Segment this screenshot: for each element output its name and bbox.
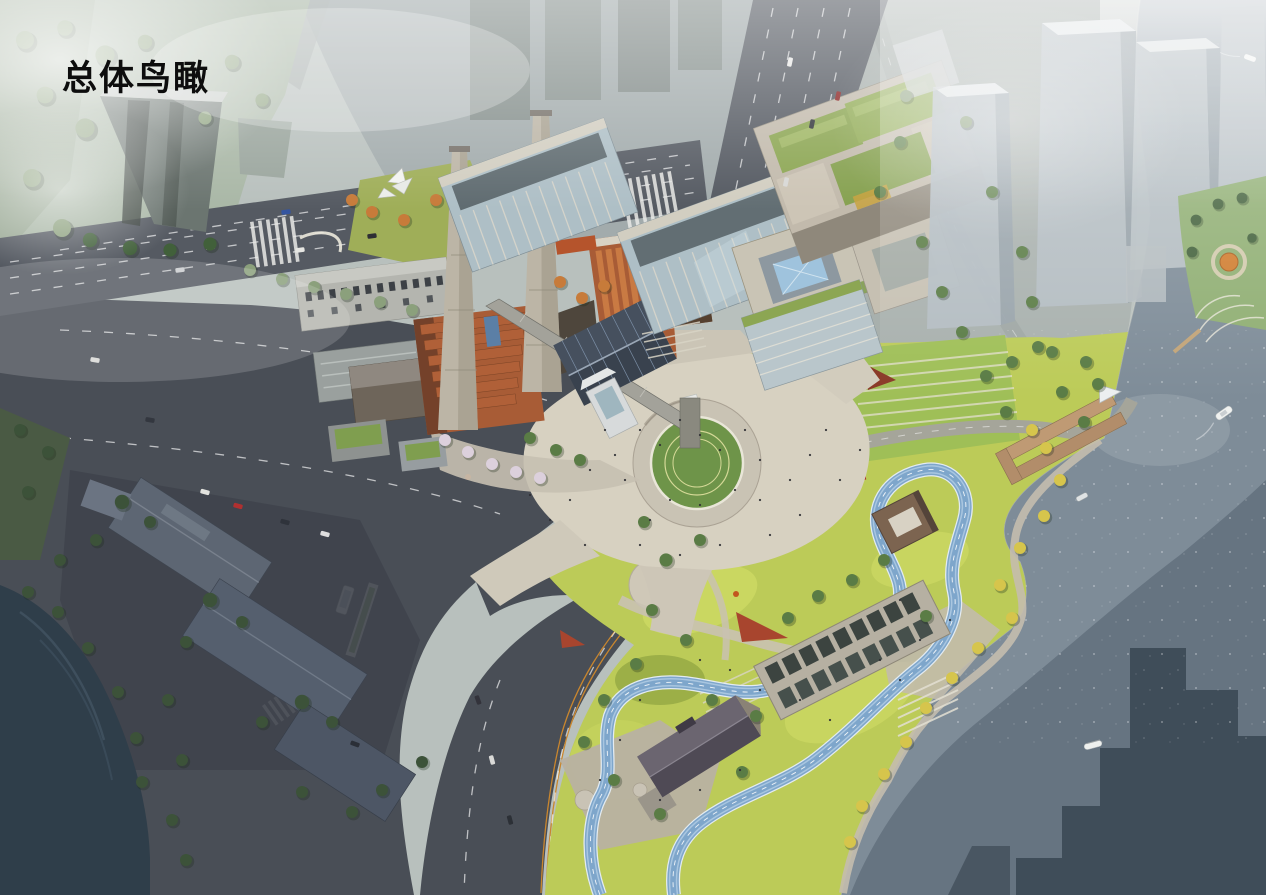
aerial-rendering: 总体鸟瞰 xyxy=(0,0,1266,895)
page-title: 总体鸟瞰 xyxy=(62,50,210,101)
